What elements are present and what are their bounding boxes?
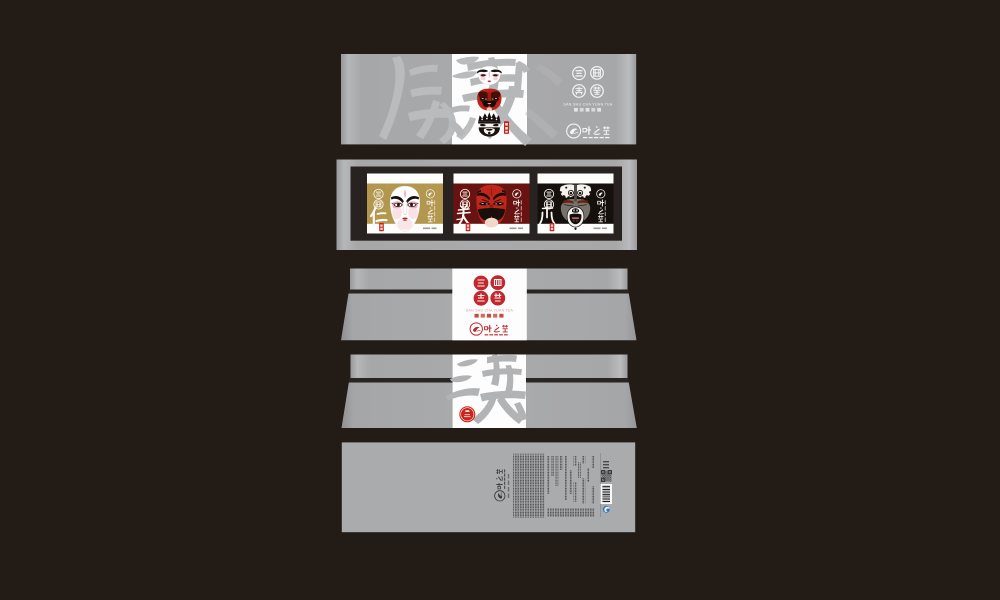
svg-text:SAN SHU CHA YUAN TEA: SAN SHU CHA YUAN TEA: [563, 103, 613, 107]
svg-text:SAN SHU CHA YUAN TEA: SAN SHU CHA YUAN TEA: [466, 309, 514, 313]
